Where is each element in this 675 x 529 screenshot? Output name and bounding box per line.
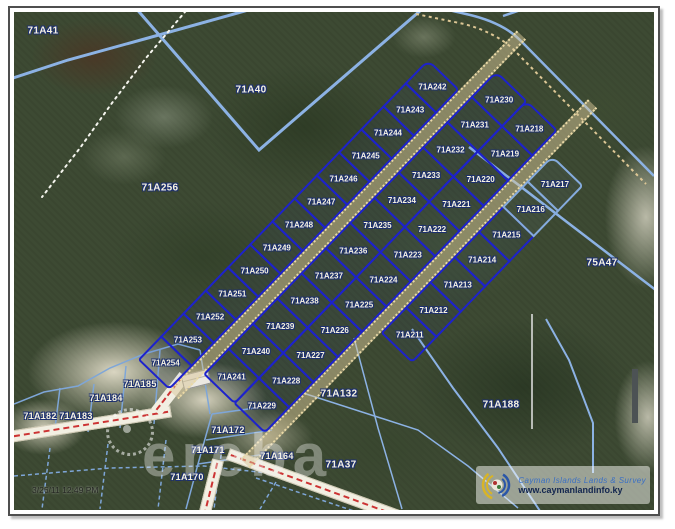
parcel-label-71A256[interactable]: 71A256 (142, 183, 179, 194)
parcel-label: 71A213 (444, 280, 472, 289)
parcel-label: 71A232 (436, 145, 464, 154)
parcel-label: 71A236 (339, 246, 367, 255)
parcel-label: 71A234 (388, 195, 416, 204)
parcel-label: 71A219 (491, 149, 519, 158)
parcel-label-71A183[interactable]: 71A183 (59, 411, 92, 421)
parcel-label: 71A239 (266, 321, 294, 330)
parcel-label: 71A249 (262, 243, 290, 252)
parcel-label: 71A221 (442, 199, 470, 208)
timestamp-text: 3/26/11 12:49 PM (32, 485, 98, 495)
parcel-label: 71A217 (541, 179, 569, 188)
logo-org-text: Cayman Islands Lands & Survey (518, 476, 646, 485)
boundary-line-ne-branch (503, 12, 538, 16)
parcel-label: 71A238 (291, 296, 319, 305)
parcel-label: 71A235 (364, 221, 392, 230)
globe-swirl-icon (480, 468, 514, 502)
parcel-label: 71A240 (242, 346, 270, 355)
parcel-label-71A185[interactable]: 71A185 (123, 379, 156, 389)
parcel-label-71A132[interactable]: 71A132 (321, 389, 358, 400)
parcel-label: 71A233 (412, 170, 440, 179)
parcel-label: 71A215 (492, 230, 520, 239)
parcel-label-71A184[interactable]: 71A184 (89, 393, 122, 403)
parcel-label: 71A231 (461, 120, 489, 129)
parcel-label: 71A229 (248, 401, 276, 410)
parcel-label: 71A252 (196, 312, 224, 321)
parcel-label: 71A227 (296, 350, 324, 359)
cayman-land-info-logo[interactable]: Cayman Islands Lands & Survey www.cayman… (476, 466, 650, 504)
parcel-label: 71A251 (218, 289, 246, 298)
parcel-label: 71A214 (468, 255, 496, 264)
parcel-label: 71A242 (418, 82, 446, 91)
right-edge-structure (632, 369, 638, 423)
parcel-label-71A40[interactable]: 71A40 (236, 85, 267, 96)
map-frame: 71A25471A25371A25271A25171A25071A24971A2… (8, 6, 660, 516)
parcel-label: 71A253 (174, 335, 202, 344)
parcel-label: 71A245 (351, 151, 379, 160)
parcel-label-71A182[interactable]: 71A182 (23, 411, 56, 421)
parcel-label-71A188[interactable]: 71A188 (483, 400, 520, 411)
parcel-label: 71A228 (272, 376, 300, 385)
parcel-label: 71A211 (395, 330, 423, 339)
logo-url-text: www.caymanlandinfo.ky (518, 485, 622, 495)
boundary-line-188-east (546, 319, 593, 473)
parcel-label: 71A254 (151, 358, 179, 367)
parcel-label: 71A220 (467, 174, 495, 183)
parcel-label: 71A244 (374, 128, 402, 137)
parcel-label: 71A247 (307, 197, 335, 206)
parcel-label: 71A243 (396, 105, 424, 114)
parcel-label: 71A248 (285, 220, 313, 229)
parcel-label: 71A216 (517, 204, 545, 213)
parcel-label: 71A241 (218, 372, 246, 381)
parcel-label: 71A222 (418, 225, 446, 234)
boundary-line-71A41 (14, 12, 252, 79)
parcel-label: 71A230 (485, 95, 513, 104)
parcel-label: 71A225 (345, 300, 373, 309)
brand-watermark: ereba (142, 426, 332, 486)
parcel-label-71A41[interactable]: 71A41 (28, 26, 59, 37)
trail-dotted-line (42, 12, 190, 197)
parcel-label-75A47[interactable]: 75A47 (587, 258, 618, 269)
parcel-label: 71A224 (369, 275, 397, 284)
aerial-map-canvas[interactable]: 71A25471A25371A25271A25171A25071A24971A2… (14, 12, 654, 510)
parcel-label: 71A212 (419, 305, 447, 314)
parcel-label: 71A223 (394, 250, 422, 259)
parcel-label: 71A250 (240, 266, 268, 275)
parcel-label: 71A226 (321, 325, 349, 334)
parcel-label: 71A218 (515, 124, 543, 133)
parcel-label: 71A237 (315, 271, 343, 280)
parcel-label: 71A246 (329, 174, 357, 183)
